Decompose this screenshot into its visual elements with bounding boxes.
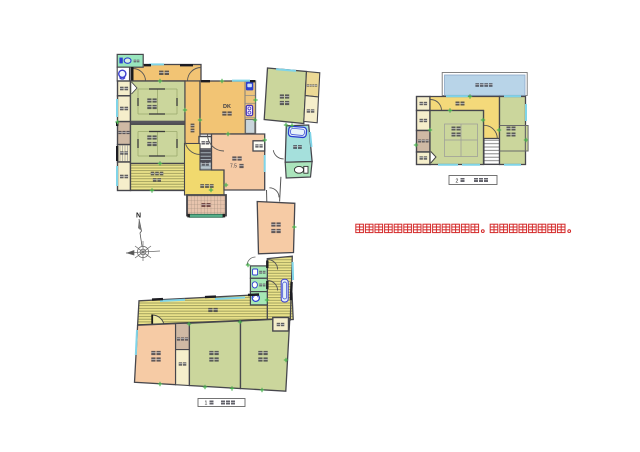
svg-text:DK: DK (223, 104, 231, 110)
svg-text:2: 2 (456, 179, 459, 185)
svg-text:7.5: 7.5 (230, 164, 237, 170)
svg-text:N: N (136, 213, 141, 220)
svg-text:1: 1 (205, 401, 208, 407)
